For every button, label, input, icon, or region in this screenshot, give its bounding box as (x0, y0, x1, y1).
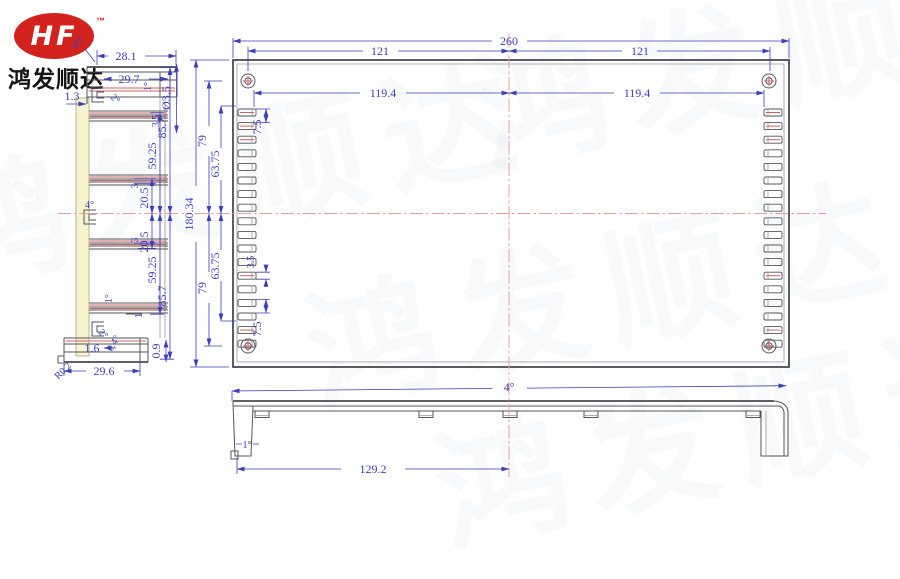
screw-hole (241, 74, 255, 88)
plan-view-dimensions: 260 121 121 119.4 119.4 180.34 79 63.75 … (182, 34, 789, 367)
dim-20-5-bot: 20.5 (137, 232, 151, 253)
dim-0-9: 0.9 (149, 344, 163, 359)
dim-dia-3-5: Ø3.5 (159, 86, 173, 110)
dim-85-7-bot: 85.7 (155, 286, 169, 307)
dim-119-4-left: 119.4 (370, 86, 397, 100)
dim-119-4-right: 119.4 (624, 86, 651, 100)
dim-121-right: 121 (631, 44, 649, 58)
side-wall-highlight (76, 98, 89, 356)
dim-29-6: 29.6 (94, 364, 115, 378)
dim-28-1: 28.1 (116, 49, 137, 63)
dim-129-2: 129.2 (360, 462, 387, 476)
dim-7-5-top: 7.5 (250, 120, 264, 135)
dim-7-5-bot: 7.5 (250, 322, 264, 337)
dim-260: 260 (500, 34, 518, 48)
screw-hole (241, 339, 255, 353)
side-view-dimensions: 28.1 45° 29.7 1.3 2° 1° Ø3.5 3.5 85.7 59… (53, 34, 177, 382)
dim-29-7: 29.7 (119, 72, 140, 86)
dim-4deg-mid: 4° (85, 200, 94, 211)
side-section-view (58, 67, 188, 363)
dim-121-left: 121 (371, 44, 389, 58)
dim-63-75-top: 63.75 (208, 151, 222, 178)
dim-59-25-bot: 59.25 (145, 257, 159, 284)
dim-1-3: 1.3 (65, 89, 80, 103)
dim-79-bot: 79 (195, 282, 209, 294)
dim-63-75-bot: 63.75 (208, 253, 222, 280)
dim-2deg-top: 2° (108, 92, 122, 106)
front-view (231, 382, 788, 477)
technical-drawing: 28.1 45° 29.7 1.3 2° 1° Ø3.5 3.5 85.7 59… (0, 0, 900, 500)
screw-hole (762, 74, 776, 88)
dim-85-7-top: 85.7 (155, 118, 169, 139)
dim-20-5-top: 20.5 (137, 188, 151, 209)
dim-180-34: 180.34 (182, 198, 196, 231)
dim-1deg-top: 1° (143, 82, 154, 91)
dim-0-4deg: 0.4° (105, 334, 123, 354)
dim-1deg-bot: 1° (104, 294, 115, 303)
dim-79-top: 79 (195, 135, 209, 147)
dim-2deg-bot: 2° (96, 327, 110, 341)
dim-3-5-slot: 3.5 (246, 256, 257, 269)
dim-45deg: 45° (69, 34, 87, 52)
dim-1deg-front: 1° (243, 440, 252, 451)
plan-view (195, 34, 826, 380)
dim-1: 1 (134, 313, 145, 318)
dim-r0-2: R0.2 (53, 361, 74, 382)
dim-4deg: 4° (504, 380, 515, 394)
dim-1-6: 1.6 (85, 341, 100, 355)
dim-59-25-top: 59.25 (145, 143, 159, 170)
cad-drawing-page: { "logo": { "brand": "HF", "trademark": … (0, 0, 900, 500)
screw-hole (762, 339, 776, 353)
